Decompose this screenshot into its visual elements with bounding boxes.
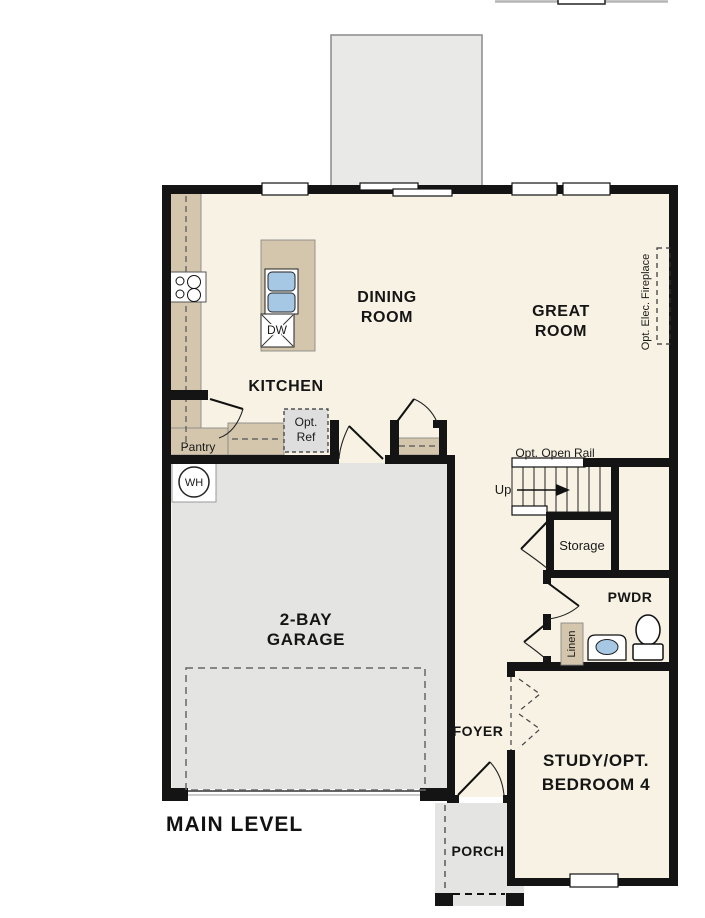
level-title: MAIN LEVEL — [166, 813, 303, 836]
floor-plan-drawing: DW Opt. Ref WH — [0, 0, 705, 918]
dishwasher-label: DW — [267, 323, 288, 337]
up-label: Up — [495, 482, 512, 497]
study-floor — [511, 666, 674, 882]
upper-floor-cutoff — [495, 0, 668, 4]
wall-stair-top — [583, 458, 669, 467]
study-label: STUDY/OPT. — [543, 751, 649, 770]
cutoff-window — [558, 0, 605, 4]
pwdr-sink — [596, 640, 618, 655]
wall-left — [162, 185, 171, 801]
porch-post — [506, 893, 524, 906]
window — [563, 183, 610, 195]
pantry-label: Pantry — [181, 440, 216, 454]
opt-ref-label: Ref — [297, 430, 316, 444]
wall-closet-left — [390, 420, 399, 464]
wall-closet-right — [439, 420, 447, 464]
wall-kitchen-garage — [162, 455, 338, 464]
sink-basin — [268, 272, 295, 291]
porch-label: PORCH — [451, 843, 504, 859]
garage-label: GARAGE — [267, 630, 345, 649]
foyer-label: FOYER — [453, 723, 504, 739]
wall-storage-top — [546, 512, 619, 520]
linen-label: Linen — [566, 631, 578, 658]
sink-basin — [268, 293, 295, 312]
kitchen-left-counter — [170, 193, 201, 455]
wall-study-top — [507, 662, 678, 671]
sliding-door-panel — [393, 189, 452, 196]
stair-rail-bottom — [512, 506, 547, 515]
water-heater-label: WH — [185, 477, 203, 489]
great-room-label: ROOM — [535, 323, 587, 340]
kitchen-label: KITCHEN — [248, 378, 323, 395]
dining-room-label: DINING — [357, 289, 417, 306]
garage-door-post — [162, 788, 188, 801]
window — [570, 874, 618, 887]
wall-hall-stub — [543, 570, 551, 584]
window — [262, 183, 308, 195]
storage-label: Storage — [559, 538, 605, 553]
opt-ref-label: Opt. — [295, 415, 318, 429]
dining-room-label: ROOM — [361, 309, 413, 326]
study-label: BEDROOM 4 — [542, 775, 650, 794]
wall-pantry-stub — [162, 390, 208, 400]
wall-pwdr-top — [543, 570, 670, 578]
great-room-label: GREAT — [532, 303, 590, 320]
wall-hall-stub — [543, 614, 551, 630]
wall-study-left — [507, 662, 515, 677]
rear-deck — [331, 35, 482, 188]
wall-garage-right — [447, 455, 455, 802]
porch-post — [435, 893, 453, 906]
opt-open-rail-label: Opt. Open Rail — [515, 446, 594, 460]
wall-foyer-stub — [447, 795, 459, 803]
toilet-bowl — [636, 615, 660, 645]
floor-plan-page: DW Opt. Ref WH — [0, 0, 705, 918]
garage-label: 2-BAY — [280, 610, 333, 629]
fireplace-note-label: Opt. Elec. Fireplace — [640, 254, 652, 351]
wall-study-left — [507, 750, 515, 886]
window — [512, 183, 557, 195]
wall-stub — [330, 420, 339, 464]
pwdr-label: PWDR — [608, 589, 653, 605]
wall-foyer-stub — [503, 795, 515, 803]
toilet-tank — [633, 644, 663, 660]
